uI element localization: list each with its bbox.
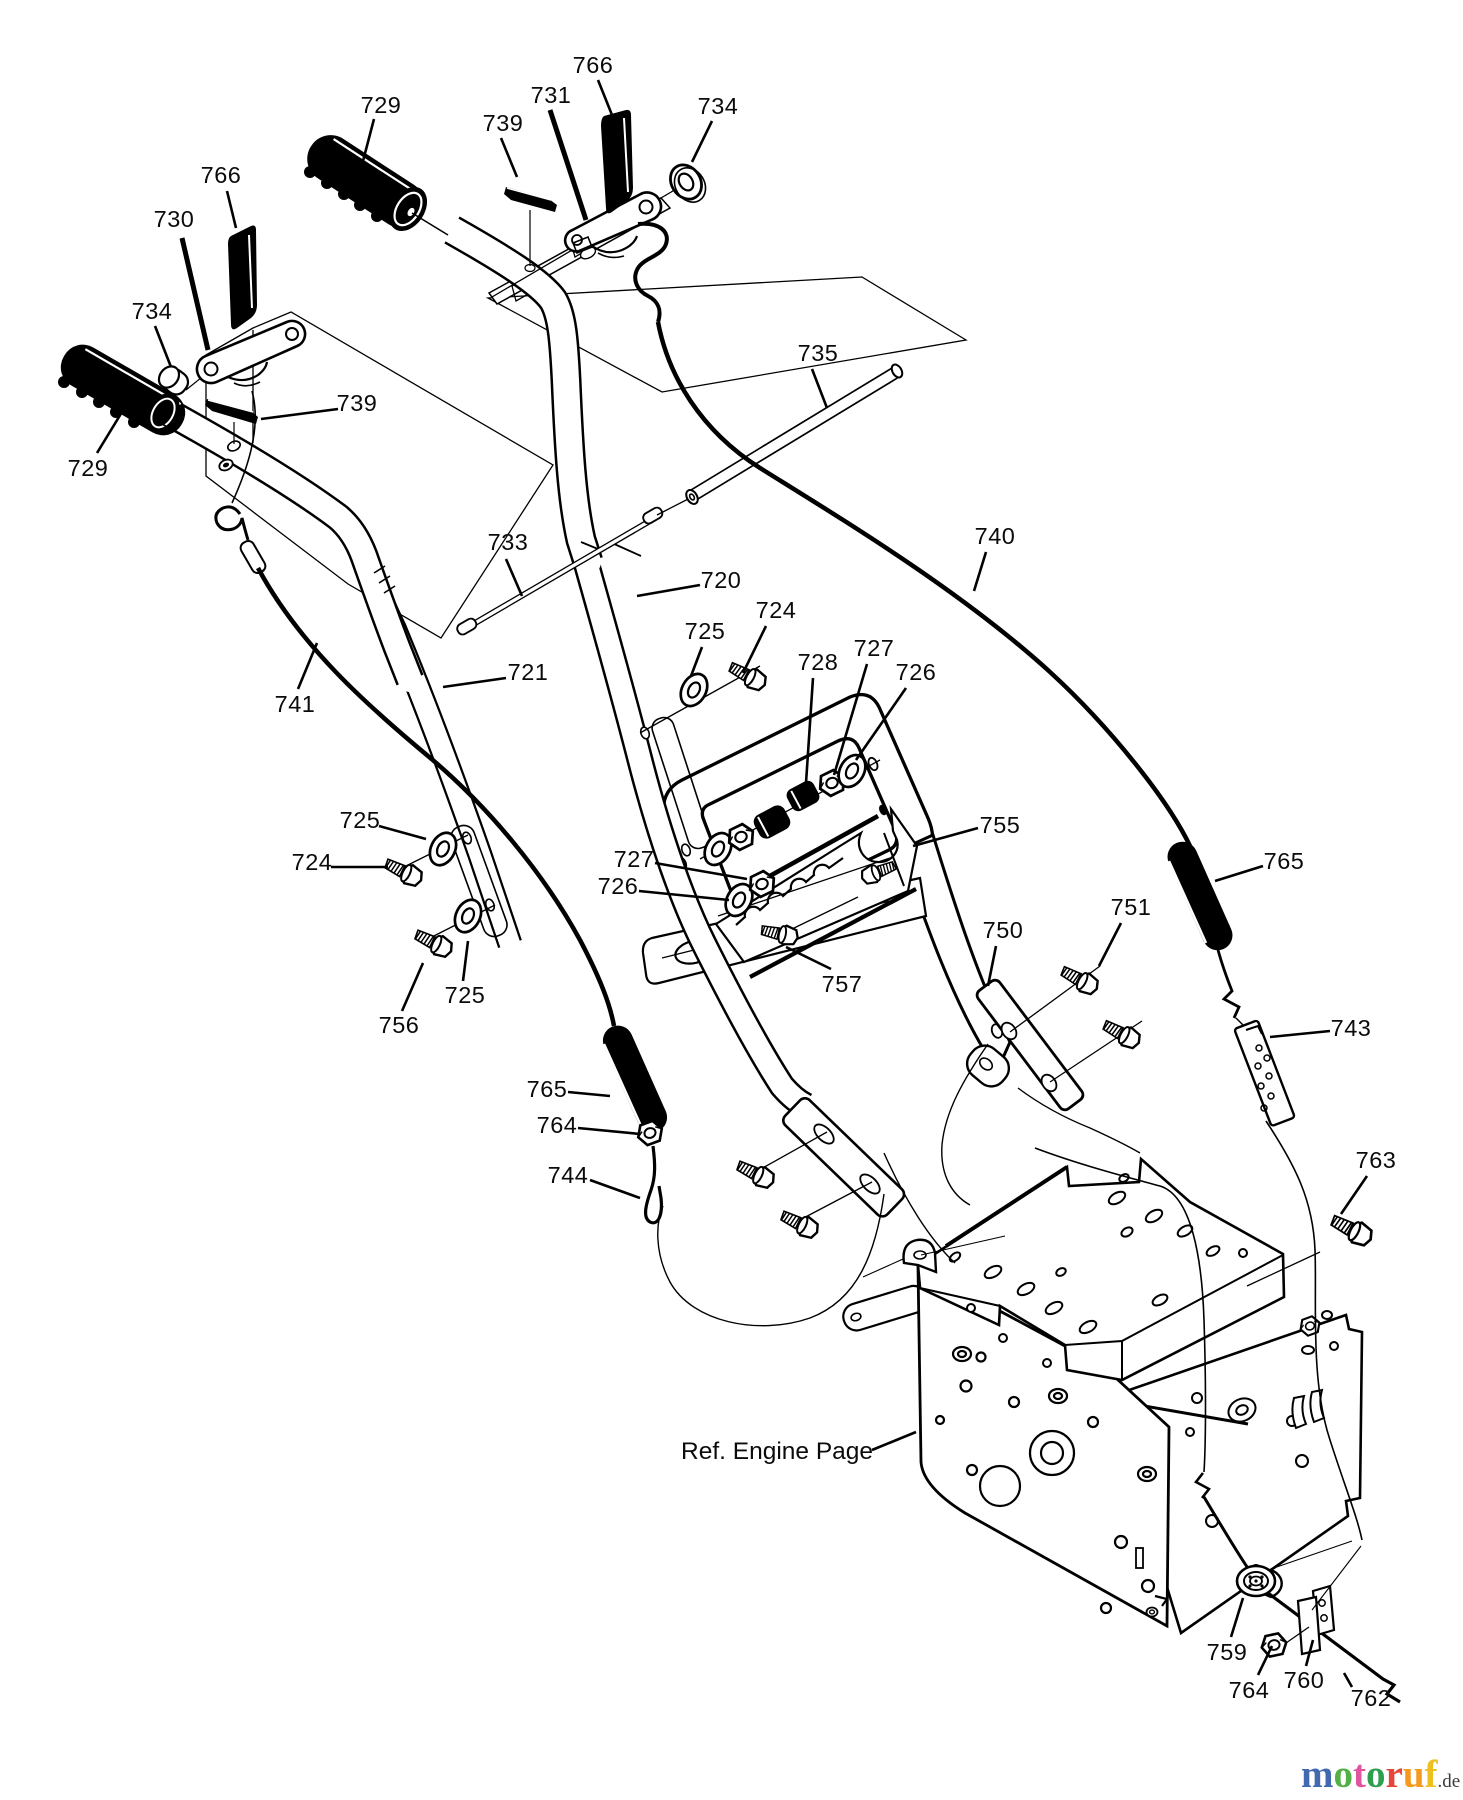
- svg-text:725: 725: [340, 807, 381, 833]
- svg-text:731: 731: [531, 82, 572, 108]
- svg-text:726: 726: [598, 873, 639, 899]
- svg-text:741: 741: [275, 691, 316, 717]
- svg-text:756: 756: [379, 1012, 420, 1038]
- svg-text:765: 765: [1264, 848, 1305, 874]
- svg-text:728: 728: [798, 649, 839, 675]
- svg-text:730: 730: [154, 206, 195, 232]
- svg-text:727: 727: [614, 846, 655, 872]
- svg-text:743: 743: [1331, 1015, 1372, 1041]
- svg-text:724: 724: [756, 597, 797, 623]
- svg-text:764: 764: [1229, 1677, 1270, 1703]
- svg-text:757: 757: [822, 971, 863, 997]
- svg-text:734: 734: [132, 298, 173, 324]
- svg-text:763: 763: [1356, 1147, 1397, 1173]
- svg-text:727: 727: [854, 635, 895, 661]
- svg-text:744: 744: [548, 1162, 589, 1188]
- svg-text:729: 729: [361, 92, 402, 118]
- svg-text:740: 740: [975, 523, 1016, 549]
- svg-text:729: 729: [68, 455, 109, 481]
- svg-text:motoruf.de: motoruf.de: [1301, 1753, 1460, 1796]
- svg-text:Ref. Engine Page: Ref. Engine Page: [681, 1438, 873, 1465]
- svg-text:759: 759: [1207, 1639, 1248, 1665]
- svg-text:766: 766: [201, 162, 242, 188]
- svg-text:721: 721: [508, 659, 549, 685]
- svg-text:724: 724: [292, 849, 333, 875]
- svg-text:750: 750: [983, 917, 1024, 943]
- svg-text:762: 762: [1351, 1685, 1392, 1711]
- svg-text:725: 725: [685, 618, 726, 644]
- svg-text:726: 726: [896, 659, 937, 685]
- svg-text:755: 755: [980, 812, 1021, 838]
- svg-text:733: 733: [488, 529, 529, 555]
- svg-text:720: 720: [701, 567, 742, 593]
- svg-text:760: 760: [1284, 1667, 1325, 1693]
- svg-text:766: 766: [573, 52, 614, 78]
- svg-text:764: 764: [537, 1112, 578, 1138]
- svg-text:734: 734: [698, 93, 739, 119]
- svg-text:739: 739: [483, 110, 524, 136]
- svg-text:765: 765: [527, 1076, 568, 1102]
- svg-text:751: 751: [1111, 894, 1152, 920]
- svg-text:735: 735: [798, 340, 839, 366]
- svg-text:725: 725: [445, 982, 486, 1008]
- svg-text:739: 739: [337, 390, 378, 416]
